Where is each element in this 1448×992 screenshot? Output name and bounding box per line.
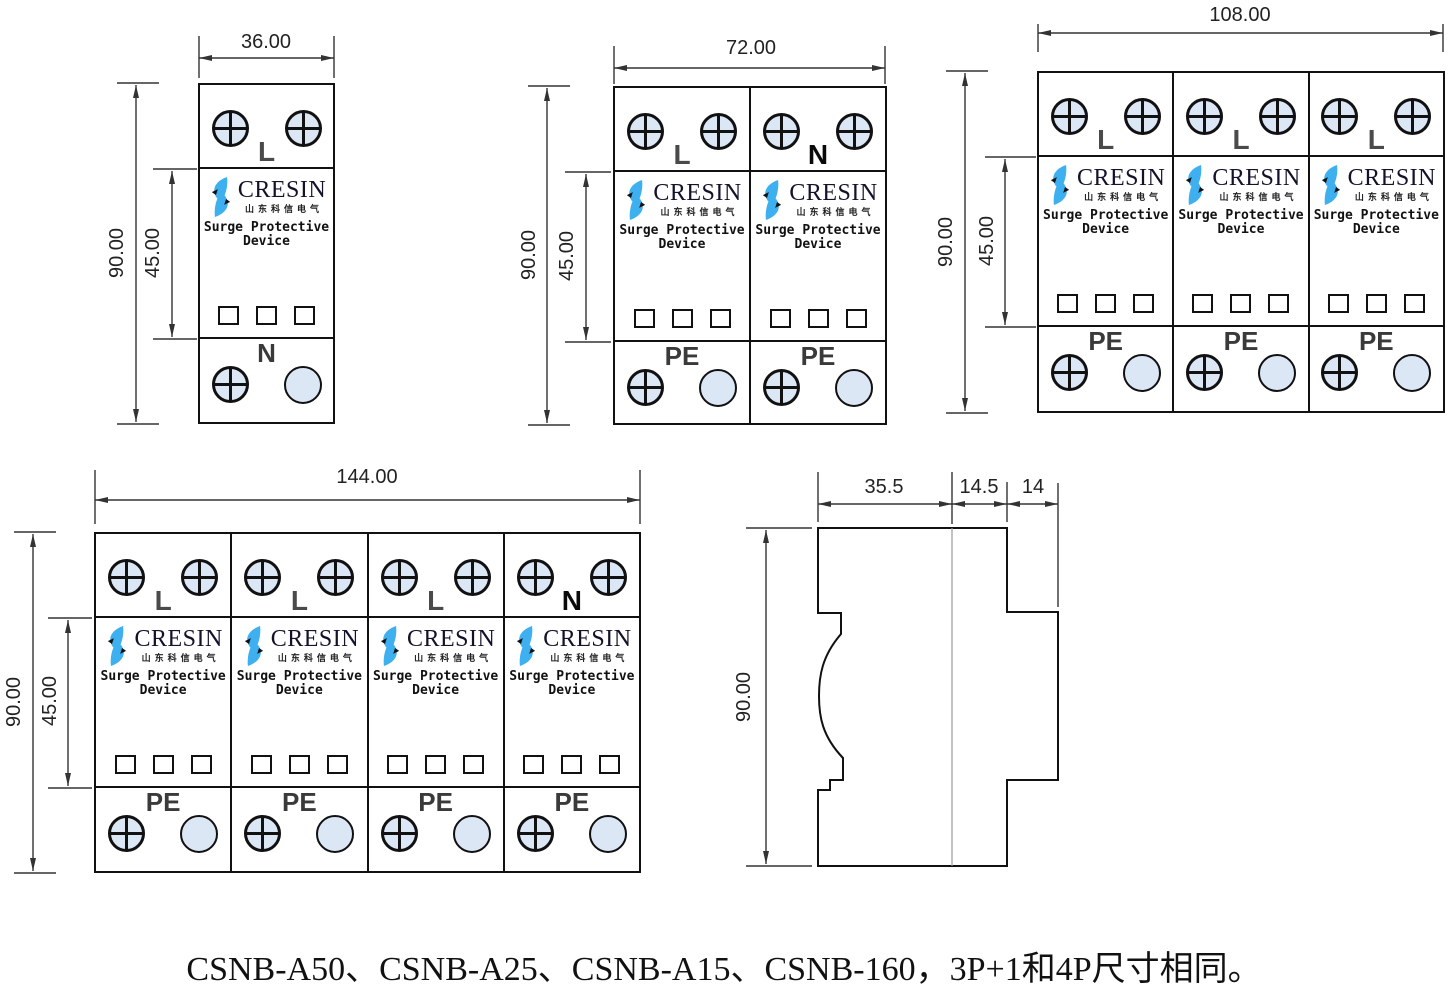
screw-terminal-icon: [627, 369, 664, 406]
terminal-label: N: [505, 587, 639, 615]
cresin-logo-icon: [1181, 164, 1209, 206]
label-section: CRESIN 山东科信电气 Surge Protective Device: [1174, 157, 1307, 327]
cresin-logo-icon: [1317, 164, 1345, 206]
indicator-window-icon: [191, 755, 212, 774]
product-text-line1: Surge Protective: [509, 670, 634, 684]
terminal-section-top: N: [505, 534, 639, 618]
brand-text-block: CRESIN 山东科信电气: [789, 182, 877, 219]
indicator-circle-icon: [284, 366, 322, 404]
indicator-window-icon: [770, 309, 791, 328]
indicator-window-icon: [463, 755, 484, 774]
brand-name: CRESIN: [543, 628, 631, 651]
screw-terminal-icon: [517, 815, 554, 852]
indicator-window-icon: [218, 306, 239, 325]
screw-terminal-icon: [381, 815, 418, 852]
spd-front-view-4p: L CRESIN 山东科信电气 Surge Protective Device: [94, 532, 641, 873]
spd-module: N CRESIN 山东科信电气 Surge Protective Device: [751, 88, 885, 423]
indicator-windows: [1057, 294, 1154, 313]
dim-label-height-2p: 90.00: [516, 195, 542, 315]
product-text-line1: Surge Protective: [755, 224, 880, 238]
indicator-windows: [387, 755, 484, 774]
product-text-line1: Surge Protective: [204, 221, 329, 235]
terminal-label: PE: [505, 789, 639, 815]
brand-name: CRESIN: [1348, 167, 1436, 190]
brand-logo: CRESIN 山东科信电气: [103, 625, 222, 667]
terminal-label: L: [200, 138, 333, 166]
terminal-section-bottom: PE: [1174, 327, 1307, 411]
dim-label-inner-4p: 45.00: [37, 641, 63, 761]
indicator-window-icon: [1192, 294, 1213, 313]
brand-name: CRESIN: [1212, 167, 1300, 190]
indicator-circle-icon: [1123, 354, 1161, 392]
product-text-line2: Device: [373, 684, 498, 698]
spd-module: L CRESIN 山东科信电气 Surge Protective Device: [1310, 73, 1443, 411]
terminal-label: PE: [1310, 328, 1443, 354]
indicator-window-icon: [846, 309, 867, 328]
terminal-label: PE: [615, 343, 749, 369]
indicator-window-icon: [327, 755, 348, 774]
product-text-line1: Surge Protective: [1043, 209, 1168, 223]
dim-label-inner-3p: 45.00: [974, 181, 1000, 301]
indicator-circle-icon: [453, 815, 491, 853]
terminal-section-top: L: [232, 534, 366, 618]
indicator-windows: [523, 755, 620, 774]
indicator-window-icon: [672, 309, 693, 328]
terminal-section-top: L: [1310, 73, 1443, 157]
label-section: CRESIN 山东科信电气 Surge Protective Device: [369, 618, 503, 788]
brand-subtitle: 山东科信电气: [138, 651, 220, 664]
label-section: CRESIN 山东科信电气 Surge Protective Device: [751, 172, 885, 342]
brand-text-block: CRESIN 山东科信电气: [271, 628, 359, 665]
product-text-line1: Surge Protective: [619, 224, 744, 238]
cresin-logo-icon: [1046, 164, 1074, 206]
product-text: Surge Protective Device: [509, 670, 634, 699]
terminal-section-bottom: PE: [96, 788, 230, 871]
screw-terminal-icon: [212, 366, 249, 403]
product-text-line1: Surge Protective: [237, 670, 362, 684]
product-text: Surge Protective Device: [237, 670, 362, 699]
spd-module: L CRESIN 山东科信电气 Surge Protective Device: [1174, 73, 1309, 411]
indicator-window-icon: [634, 309, 655, 328]
terminal-section-bottom: PE: [1310, 327, 1443, 411]
spd-module: L CRESIN 山东科信电气 Surge Protective Device: [96, 534, 232, 871]
indicator-window-icon: [251, 755, 272, 774]
product-text-line2: Device: [1178, 223, 1303, 237]
product-text-line2: Device: [755, 238, 880, 252]
indicator-circle-icon: [589, 815, 627, 853]
indicator-windows: [634, 309, 731, 328]
brand-logo: CRESIN 山东科信电气: [512, 625, 631, 667]
indicator-window-icon: [425, 755, 446, 774]
product-text: Surge Protective Device: [619, 224, 744, 253]
spd-module: L CRESIN 山东科信电气 Surge Protective Device: [615, 88, 751, 423]
brand-logo: CRESIN 山东科信电气: [1181, 164, 1300, 206]
brand-text-block: CRESIN 山东科信电气: [407, 628, 495, 665]
terminal-section-top: N: [751, 88, 885, 172]
brand-subtitle: 山东科信电气: [1215, 190, 1297, 203]
product-text-line1: Surge Protective: [1178, 209, 1303, 223]
brand-subtitle: 山东科信电气: [1351, 190, 1433, 203]
indicator-circle-icon: [699, 369, 737, 407]
terminal-label: PE: [232, 789, 366, 815]
screw-terminal-icon: [763, 369, 800, 406]
terminal-section-bottom: PE: [1039, 327, 1172, 411]
product-text: Surge Protective Device: [204, 221, 329, 250]
brand-text-block: CRESIN 山东科信电气: [134, 628, 222, 665]
product-text: Surge Protective Device: [1178, 209, 1303, 238]
side-profile-outline: [818, 528, 1058, 866]
terminal-label: PE: [96, 789, 230, 815]
indicator-window-icon: [1404, 294, 1425, 313]
brand-logo: CRESIN 山东科信电气: [1317, 164, 1436, 206]
brand-name: CRESIN: [238, 179, 326, 202]
cresin-logo-icon: [758, 179, 786, 221]
cresin-logo-icon: [622, 179, 650, 221]
brand-subtitle: 山东科信电气: [274, 651, 356, 664]
label-section: CRESIN 山东科信电气 Surge Protective Device: [1310, 157, 1443, 327]
indicator-circle-icon: [1393, 354, 1431, 392]
label-section: CRESIN 山东科信电气 Surge Protective Device: [200, 169, 333, 339]
product-text: Surge Protective Device: [1314, 209, 1439, 238]
brand-name: CRESIN: [789, 182, 877, 205]
brand-logo: CRESIN 山东科信电气: [758, 179, 877, 221]
side-profile-view: [746, 472, 1058, 866]
brand-name: CRESIN: [1077, 167, 1165, 190]
brand-subtitle: 山东科信电气: [656, 205, 738, 218]
spd-module: L CRESIN 山东科信电气 Surge Protective Device: [200, 85, 333, 422]
dim-label-width-3p: 108.00: [1180, 2, 1300, 28]
indicator-circle-icon: [1258, 354, 1296, 392]
drawing-canvas: L CRESIN 山东科信电气 Surge Protective Device: [0, 0, 1448, 992]
label-section: CRESIN 山东科信电气 Surge Protective Device: [232, 618, 366, 788]
brand-logo: CRESIN 山东科信电气: [240, 625, 359, 667]
indicator-windows: [1328, 294, 1425, 313]
cresin-logo-icon: [240, 625, 268, 667]
terminal-label: N: [751, 141, 885, 169]
product-text: Surge Protective Device: [101, 670, 226, 699]
brand-text-block: CRESIN 山东科信电气: [1077, 167, 1165, 204]
terminal-section-top: L: [96, 534, 230, 618]
indicator-window-icon: [289, 755, 310, 774]
cresin-logo-icon: [512, 625, 540, 667]
indicator-windows: [218, 306, 315, 325]
spd-module: N CRESIN 山东科信电气 Surge Protective Device: [505, 534, 639, 871]
terminal-label: PE: [1039, 328, 1172, 354]
indicator-window-icon: [1133, 294, 1154, 313]
brand-subtitle: 山东科信电气: [241, 202, 323, 215]
indicator-circle-icon: [180, 815, 218, 853]
spd-front-view-1p: L CRESIN 山东科信电气 Surge Protective Device: [198, 83, 335, 424]
terminal-section-bottom: N: [200, 339, 333, 422]
product-text: Surge Protective Device: [755, 224, 880, 253]
indicator-window-icon: [523, 755, 544, 774]
indicator-window-icon: [1268, 294, 1289, 313]
indicator-windows: [770, 309, 867, 328]
product-text-line1: Surge Protective: [373, 670, 498, 684]
brand-subtitle: 山东科信电气: [546, 651, 628, 664]
terminal-section-bottom: PE: [751, 342, 885, 423]
brand-text-block: CRESIN 山东科信电气: [238, 179, 326, 216]
dim-label-inner-1p: 45.00: [140, 193, 166, 313]
indicator-window-icon: [256, 306, 277, 325]
brand-name: CRESIN: [407, 628, 495, 651]
terminal-label: PE: [1174, 328, 1307, 354]
product-text-line2: Device: [1314, 223, 1439, 237]
indicator-window-icon: [599, 755, 620, 774]
screw-terminal-icon: [1321, 354, 1358, 391]
spd-module: L CRESIN 山东科信电气 Surge Protective Device: [232, 534, 368, 871]
dim-label-side-height: 90.00: [731, 637, 757, 757]
brand-subtitle: 山东科信电气: [410, 651, 492, 664]
spd-module: L CRESIN 山东科信电气 Surge Protective Device: [369, 534, 505, 871]
label-section: CRESIN 山东科信电气 Surge Protective Device: [615, 172, 749, 342]
brand-logo: CRESIN 山东科信电气: [207, 176, 326, 218]
dim-label-height-1p: 90.00: [104, 193, 130, 313]
indicator-window-icon: [561, 755, 582, 774]
terminal-section-top: L: [200, 85, 333, 169]
screw-terminal-icon: [1186, 354, 1223, 391]
indicator-window-icon: [153, 755, 174, 774]
product-text-line2: Device: [101, 684, 226, 698]
terminal-label: N: [200, 340, 333, 366]
label-section: CRESIN 山东科信电气 Surge Protective Device: [505, 618, 639, 788]
indicator-window-icon: [115, 755, 136, 774]
brand-logo: CRESIN 山东科信电气: [1046, 164, 1165, 206]
product-text-line1: Surge Protective: [1314, 209, 1439, 223]
product-text-line2: Device: [619, 238, 744, 252]
cresin-logo-icon: [207, 176, 235, 218]
terminal-section-top: L: [1039, 73, 1172, 157]
brand-text-block: CRESIN 山东科信电气: [1348, 167, 1436, 204]
terminal-label: L: [369, 587, 503, 615]
side-view-dimensions: [746, 472, 1058, 866]
terminal-label: L: [1174, 126, 1307, 154]
indicator-window-icon: [1366, 294, 1387, 313]
terminal-section-top: L: [1174, 73, 1307, 157]
terminal-label: L: [615, 141, 749, 169]
brand-name: CRESIN: [134, 628, 222, 651]
dim-label-height-4p: 90.00: [1, 642, 27, 762]
brand-text-block: CRESIN 山东科信电气: [543, 628, 631, 665]
product-text-line2: Device: [237, 684, 362, 698]
caption-text: CSNB-A50、CSNB-A25、CSNB-A15、CSNB-160，3P+1…: [0, 941, 1448, 990]
indicator-window-icon: [294, 306, 315, 325]
terminal-section-bottom: PE: [615, 342, 749, 423]
terminal-section-bottom: PE: [232, 788, 366, 871]
indicator-circle-icon: [316, 815, 354, 853]
terminal-label: L: [1310, 126, 1443, 154]
brand-subtitle: 山东科信电气: [792, 205, 874, 218]
terminal-label: L: [96, 587, 230, 615]
label-section: CRESIN 山东科信电气 Surge Protective Device: [1039, 157, 1172, 327]
indicator-windows: [251, 755, 348, 774]
indicator-window-icon: [808, 309, 829, 328]
product-text: Surge Protective Device: [373, 670, 498, 699]
spd-module: L CRESIN 山东科信电气 Surge Protective Device: [1039, 73, 1174, 411]
label-section: CRESIN 山东科信电气 Surge Protective Device: [96, 618, 230, 788]
product-text-line2: Device: [204, 235, 329, 249]
indicator-circle-icon: [835, 369, 873, 407]
terminal-label: PE: [369, 789, 503, 815]
terminal-section-top: L: [369, 534, 503, 618]
indicator-window-icon: [1095, 294, 1116, 313]
dim-label-side-clip: 14: [973, 474, 1093, 500]
terminal-section-bottom: PE: [505, 788, 639, 871]
indicator-window-icon: [1057, 294, 1078, 313]
cresin-logo-icon: [376, 625, 404, 667]
terminal-section-top: L: [615, 88, 749, 172]
brand-name: CRESIN: [653, 182, 741, 205]
brand-logo: CRESIN 山东科信电气: [622, 179, 741, 221]
indicator-window-icon: [387, 755, 408, 774]
indicator-windows: [1192, 294, 1289, 313]
dim-label-inner-2p: 45.00: [554, 196, 580, 316]
brand-subtitle: 山东科信电气: [1080, 190, 1162, 203]
indicator-windows: [115, 755, 212, 774]
spd-front-view-3p: L CRESIN 山东科信电气 Surge Protective Device: [1037, 71, 1445, 413]
brand-text-block: CRESIN 山东科信电气: [1212, 167, 1300, 204]
brand-text-block: CRESIN 山东科信电气: [653, 182, 741, 219]
product-text-line2: Device: [1043, 223, 1168, 237]
terminal-section-bottom: PE: [369, 788, 503, 871]
terminal-label: PE: [751, 343, 885, 369]
brand-name: CRESIN: [271, 628, 359, 651]
product-text-line2: Device: [509, 684, 634, 698]
indicator-window-icon: [1328, 294, 1349, 313]
dim-label-width-4p: 144.00: [307, 464, 427, 490]
dim-label-width-2p: 72.00: [691, 35, 811, 61]
screw-terminal-icon: [108, 815, 145, 852]
terminal-label: L: [1039, 126, 1172, 154]
product-text: Surge Protective Device: [1043, 209, 1168, 238]
screw-terminal-icon: [1051, 354, 1088, 391]
product-text-line1: Surge Protective: [101, 670, 226, 684]
indicator-window-icon: [710, 309, 731, 328]
brand-logo: CRESIN 山东科信电气: [376, 625, 495, 667]
dim-label-height-3p: 90.00: [933, 182, 959, 302]
screw-terminal-icon: [244, 815, 281, 852]
spd-front-view-2p: L CRESIN 山东科信电气 Surge Protective Device: [613, 86, 887, 425]
terminal-label: L: [232, 587, 366, 615]
cresin-logo-icon: [103, 625, 131, 667]
indicator-window-icon: [1230, 294, 1251, 313]
dim-label-width-1p: 36.00: [206, 29, 326, 55]
